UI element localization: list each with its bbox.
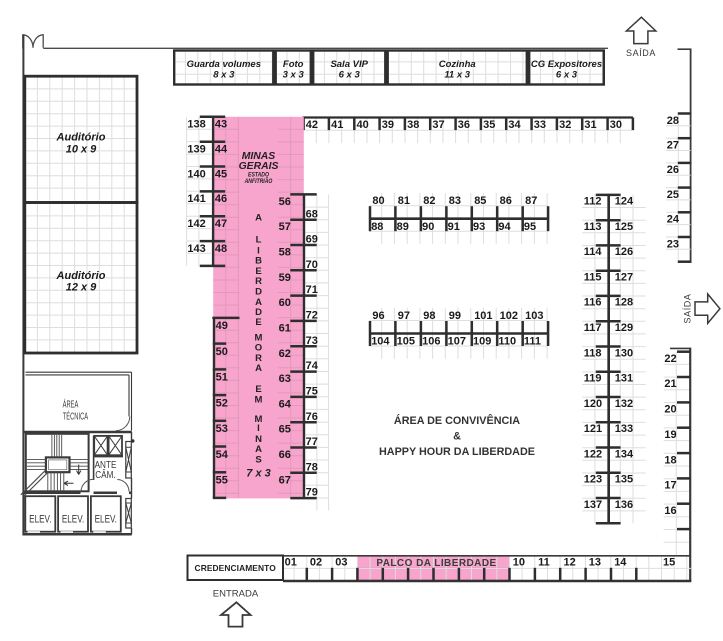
svg-text:57: 57 [279, 221, 291, 233]
svg-text:39: 39 [382, 119, 394, 131]
svg-text:83: 83 [449, 195, 461, 207]
svg-text:115: 115 [584, 272, 602, 284]
svg-text:54: 54 [216, 449, 229, 461]
svg-text:78: 78 [306, 461, 318, 473]
svg-text:88: 88 [371, 221, 383, 233]
svg-text:142: 142 [187, 218, 205, 230]
svg-text:59: 59 [279, 272, 291, 284]
svg-text:118: 118 [584, 347, 602, 359]
svg-text:48: 48 [215, 243, 227, 255]
svg-text:131: 131 [615, 373, 633, 385]
svg-text:Foto: Foto [283, 59, 304, 70]
svg-text:A: A [255, 444, 262, 455]
svg-text:58: 58 [279, 247, 291, 259]
svg-text:126: 126 [615, 246, 633, 258]
svg-text:143: 143 [187, 243, 205, 255]
svg-text:01: 01 [285, 556, 297, 568]
svg-text:136: 136 [615, 499, 633, 511]
svg-text:02: 02 [310, 556, 322, 568]
svg-text:66: 66 [279, 449, 291, 461]
svg-text:61: 61 [279, 323, 291, 335]
svg-text:CÂM.: CÂM. [95, 468, 115, 480]
svg-text:10: 10 [513, 556, 525, 568]
svg-text:ENTRADA: ENTRADA [213, 589, 259, 600]
svg-text:130: 130 [615, 347, 633, 359]
svg-text:138: 138 [187, 119, 205, 131]
svg-text:97: 97 [398, 310, 410, 322]
svg-text:8 x 3: 8 x 3 [213, 69, 235, 80]
svg-text:64: 64 [279, 398, 292, 410]
svg-text:62: 62 [279, 348, 291, 360]
svg-text:15: 15 [663, 556, 675, 568]
svg-text:63: 63 [279, 373, 291, 385]
svg-text:67: 67 [279, 474, 291, 486]
svg-text:122: 122 [584, 448, 602, 460]
svg-text:ÁREA: ÁREA [63, 398, 79, 410]
svg-text:45: 45 [215, 168, 227, 180]
svg-text:12: 12 [564, 556, 576, 568]
svg-text:127: 127 [615, 272, 633, 284]
svg-text:114: 114 [584, 246, 603, 258]
svg-text:22: 22 [664, 353, 676, 365]
svg-text:95: 95 [524, 221, 536, 233]
svg-text:11: 11 [538, 556, 550, 568]
svg-text:128: 128 [615, 297, 633, 309]
svg-text:76: 76 [306, 411, 318, 423]
svg-text:102: 102 [500, 310, 518, 322]
svg-text:81: 81 [398, 195, 410, 207]
svg-text:SAÍDA: SAÍDA [683, 293, 693, 323]
svg-text:93: 93 [473, 221, 485, 233]
svg-text:135: 135 [615, 474, 633, 486]
svg-text:33: 33 [534, 119, 546, 131]
svg-text:M: M [255, 394, 263, 405]
svg-text:137: 137 [584, 499, 602, 511]
svg-text:99: 99 [449, 310, 461, 322]
svg-text:87: 87 [525, 195, 537, 207]
svg-text:98: 98 [423, 310, 435, 322]
svg-text:74: 74 [306, 360, 319, 372]
svg-text:Auditório: Auditório [56, 132, 106, 144]
svg-text:ELEV.: ELEV. [95, 513, 117, 526]
svg-text:91: 91 [448, 221, 460, 233]
svg-text:139: 139 [187, 144, 205, 156]
svg-text:105: 105 [397, 336, 415, 348]
svg-text:120: 120 [584, 398, 602, 410]
svg-text:106: 106 [422, 336, 440, 348]
svg-text:42: 42 [306, 119, 318, 131]
svg-text:94: 94 [498, 221, 511, 233]
svg-text:16: 16 [664, 505, 676, 517]
svg-text:47: 47 [215, 218, 227, 230]
svg-text:111: 111 [524, 336, 541, 348]
svg-text:ÁREA DE CONVIVÊNCIA: ÁREA DE CONVIVÊNCIA [394, 414, 520, 427]
svg-text:129: 129 [615, 322, 633, 334]
svg-text:A: A [255, 213, 262, 224]
svg-text:S: S [255, 455, 261, 466]
svg-text:50: 50 [216, 346, 228, 358]
svg-text:E: E [255, 317, 261, 328]
svg-text:90: 90 [422, 221, 434, 233]
svg-text:86: 86 [500, 195, 512, 207]
svg-text:CG Expositores: CG Expositores [531, 59, 602, 70]
svg-text:82: 82 [423, 195, 435, 207]
svg-text:121: 121 [584, 423, 602, 435]
svg-text:55: 55 [216, 475, 228, 487]
svg-text:79: 79 [306, 487, 318, 499]
svg-text:68: 68 [306, 208, 318, 220]
svg-text:6 x 3: 6 x 3 [339, 69, 361, 80]
svg-text:35: 35 [483, 119, 495, 131]
svg-text:7 x 3: 7 x 3 [246, 468, 270, 480]
svg-text:Guarda volumes: Guarda volumes [187, 59, 261, 70]
svg-text:Sala VIP: Sala VIP [330, 59, 368, 70]
svg-text:85: 85 [474, 195, 486, 207]
svg-text:36: 36 [458, 119, 470, 131]
svg-text:21: 21 [664, 378, 676, 390]
svg-text:03: 03 [335, 556, 347, 568]
svg-text:112: 112 [584, 196, 602, 208]
svg-text:132: 132 [615, 398, 633, 410]
svg-text:12 x 9: 12 x 9 [66, 282, 97, 294]
svg-text:60: 60 [279, 297, 291, 309]
svg-text:Cozinha: Cozinha [439, 59, 476, 70]
svg-text:52: 52 [216, 397, 228, 409]
svg-text:10 x 9: 10 x 9 [66, 143, 97, 155]
svg-text:103: 103 [525, 310, 543, 322]
svg-text:72: 72 [306, 310, 318, 322]
svg-text:14: 14 [614, 556, 627, 568]
svg-text:38: 38 [407, 119, 419, 131]
svg-text:24: 24 [667, 214, 680, 226]
svg-text:PALCO DA LIBERDADE: PALCO DA LIBERDADE [376, 558, 496, 569]
svg-text:69: 69 [306, 234, 318, 246]
svg-text:124: 124 [615, 196, 634, 208]
svg-text:80: 80 [372, 195, 384, 207]
svg-text:3 x 3: 3 x 3 [283, 69, 305, 80]
svg-text:75: 75 [306, 386, 318, 398]
svg-text:70: 70 [306, 259, 318, 271]
svg-text:43: 43 [215, 119, 227, 131]
svg-text:23: 23 [667, 238, 679, 250]
svg-text:125: 125 [615, 221, 633, 233]
svg-text:ANFITRIÃO: ANFITRIÃO [244, 177, 273, 185]
svg-text:30: 30 [610, 119, 622, 131]
svg-text:65: 65 [279, 424, 291, 436]
svg-text:133: 133 [615, 423, 633, 435]
svg-text:34: 34 [508, 119, 521, 131]
svg-text:113: 113 [584, 221, 602, 233]
svg-text:20: 20 [664, 404, 676, 416]
svg-text:32: 32 [559, 119, 571, 131]
svg-text:31: 31 [584, 119, 596, 131]
svg-text:CREDENCIAMENTO: CREDENCIAMENTO [195, 563, 277, 573]
svg-text:71: 71 [306, 284, 318, 296]
svg-text:117: 117 [584, 322, 602, 334]
svg-text:53: 53 [216, 423, 228, 435]
svg-text:89: 89 [397, 221, 409, 233]
svg-text:19: 19 [664, 429, 676, 441]
svg-text:40: 40 [357, 119, 369, 131]
svg-text:56: 56 [279, 196, 291, 208]
svg-text:140: 140 [187, 168, 205, 180]
svg-text:11 x 3: 11 x 3 [444, 69, 470, 80]
svg-text:73: 73 [306, 335, 318, 347]
svg-text:6 x 3: 6 x 3 [556, 69, 578, 80]
svg-text:49: 49 [216, 320, 228, 332]
svg-text:B: B [255, 255, 262, 266]
svg-text:17: 17 [664, 480, 676, 492]
svg-text:116: 116 [584, 297, 602, 309]
svg-text:Auditório: Auditório [56, 270, 106, 282]
svg-text:25: 25 [667, 189, 679, 201]
svg-text:A: A [255, 363, 262, 374]
svg-text:R: R [255, 276, 262, 287]
svg-text:123: 123 [584, 474, 602, 486]
svg-text:41: 41 [331, 119, 343, 131]
svg-text:18: 18 [664, 454, 676, 466]
svg-text:27: 27 [667, 140, 679, 152]
svg-text:104: 104 [371, 336, 390, 348]
svg-text:13: 13 [589, 556, 601, 568]
svg-text:L: L [256, 234, 262, 245]
svg-text:TÉCNICA: TÉCNICA [63, 410, 89, 422]
svg-text:ELEV.: ELEV. [62, 513, 84, 526]
svg-text:96: 96 [372, 310, 384, 322]
svg-text:107: 107 [448, 336, 466, 348]
svg-text:&: & [453, 431, 461, 443]
svg-text:28: 28 [667, 115, 679, 127]
svg-text:44: 44 [215, 144, 228, 156]
svg-text:110: 110 [498, 336, 516, 348]
svg-text:46: 46 [215, 193, 227, 205]
svg-text:HAPPY HOUR DA LIBERDADE: HAPPY HOUR DA LIBERDADE [379, 446, 535, 458]
svg-text:109: 109 [473, 336, 491, 348]
svg-text:119: 119 [584, 373, 602, 385]
svg-text:51: 51 [216, 372, 228, 384]
svg-text:GERAIS: GERAIS [239, 161, 279, 172]
svg-text:77: 77 [306, 436, 318, 448]
svg-text:37: 37 [432, 119, 444, 131]
svg-text:101: 101 [474, 310, 492, 322]
svg-text:SAÍDA: SAÍDA [626, 48, 656, 58]
svg-text:134: 134 [615, 448, 634, 460]
svg-text:ELEV.: ELEV. [29, 513, 51, 526]
svg-text:141: 141 [187, 193, 205, 205]
svg-text:26: 26 [667, 164, 679, 176]
svg-text:I: I [257, 423, 260, 434]
